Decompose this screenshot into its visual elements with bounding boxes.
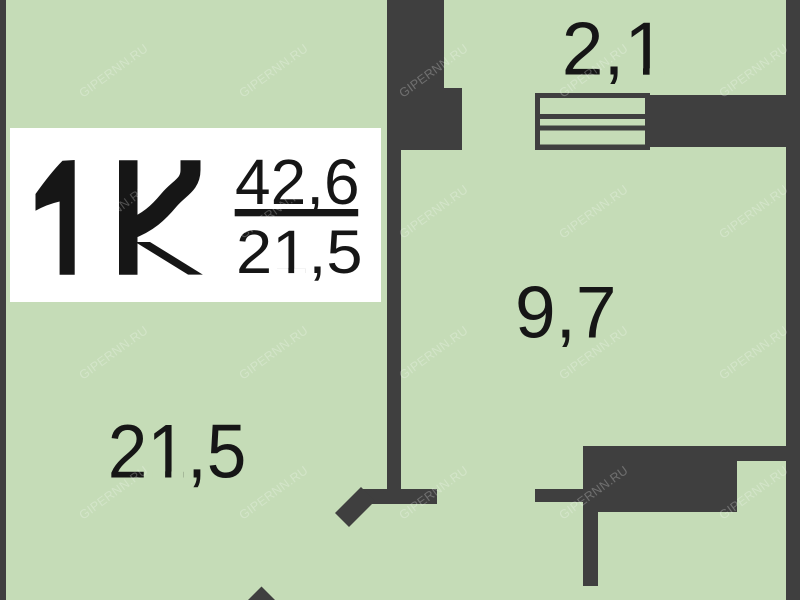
- svg-text:42,6: 42,6: [235, 146, 360, 218]
